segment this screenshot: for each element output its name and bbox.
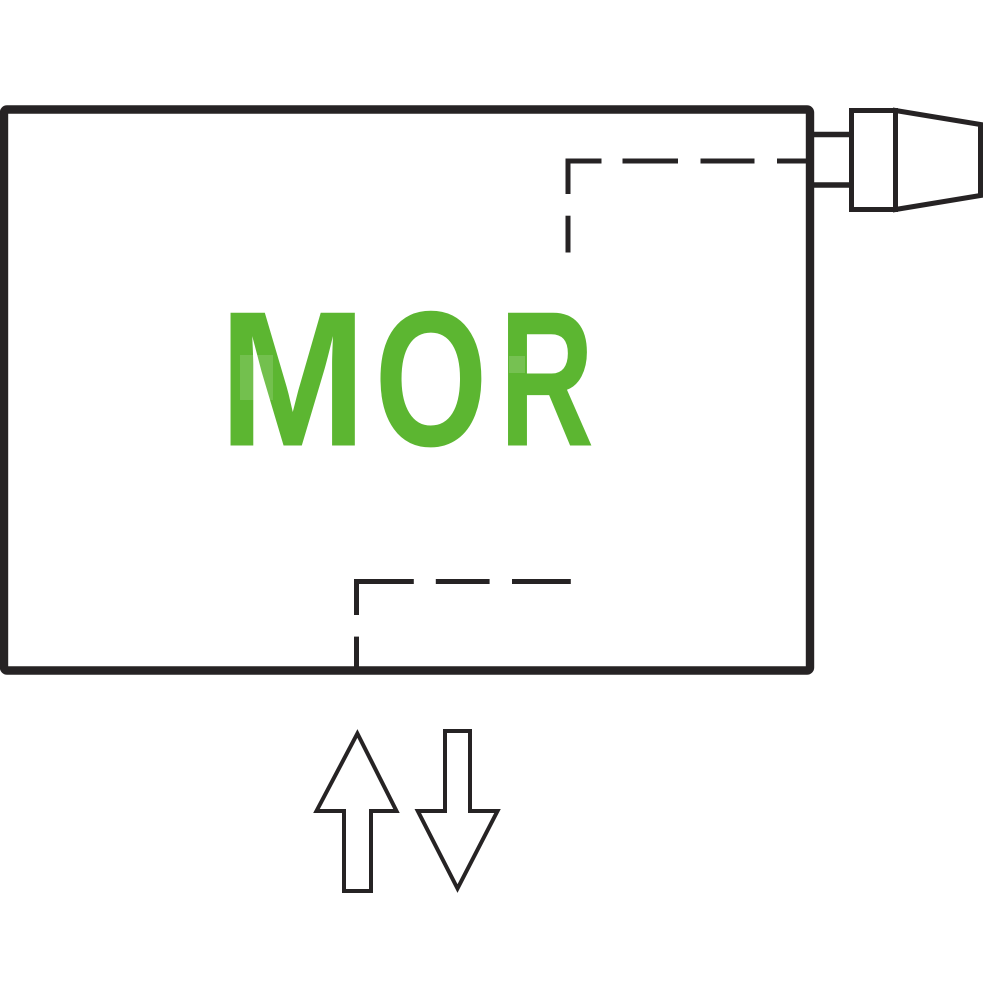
svg-text:O: O bbox=[375, 271, 488, 487]
svg-text:R: R bbox=[499, 271, 594, 486]
